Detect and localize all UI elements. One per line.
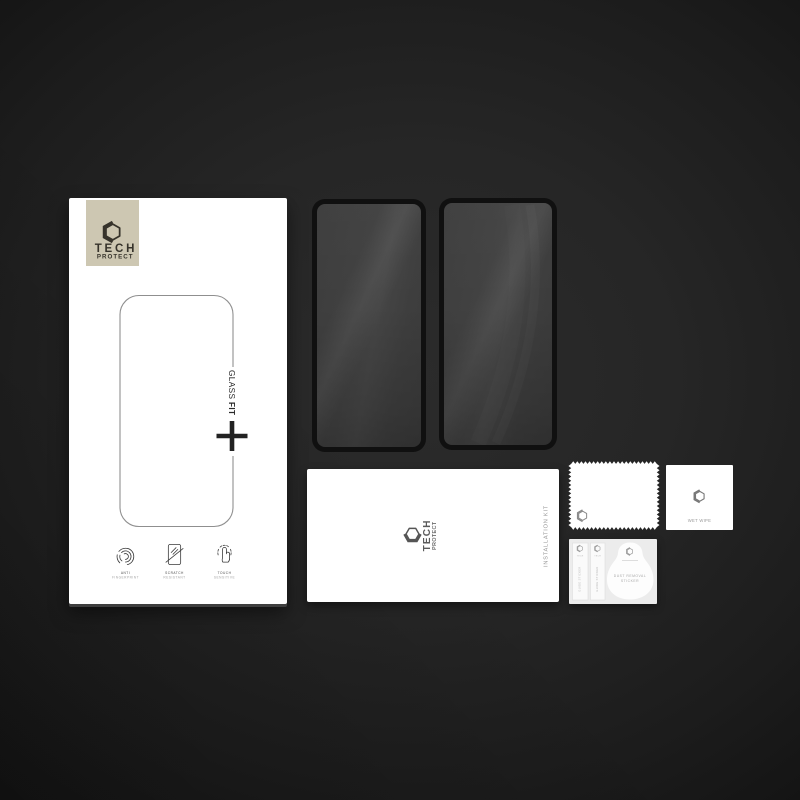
svg-text:SCRATCH: SCRATCH — [165, 571, 184, 575]
svg-text:STICKER: STICKER — [621, 579, 639, 583]
svg-text:TECH: TECH — [594, 556, 601, 558]
svg-text:RESISTANT: RESISTANT — [163, 576, 185, 580]
svg-text:GLASS FIT: GLASS FIT — [227, 370, 236, 415]
svg-text:WET WIPE: WET WIPE — [688, 518, 712, 523]
svg-text:INSTALLATION KIT: INSTALLATION KIT — [543, 505, 549, 567]
svg-text:PROTECT: PROTECT — [432, 521, 438, 550]
svg-text:GUIDE STICKER: GUIDE STICKER — [578, 566, 582, 591]
svg-text:TECH: TECH — [577, 556, 584, 558]
svg-text:TOUCH: TOUCH — [218, 571, 232, 575]
svg-text:FINGERPRINT: FINGERPRINT — [112, 576, 139, 580]
svg-text:SENSITIVE: SENSITIVE — [214, 576, 235, 580]
svg-text:ANTI: ANTI — [121, 571, 130, 575]
svg-text:DUST REMOVAL: DUST REMOVAL — [614, 574, 646, 578]
svg-text:GUIDE STICKER: GUIDE STICKER — [595, 566, 599, 591]
